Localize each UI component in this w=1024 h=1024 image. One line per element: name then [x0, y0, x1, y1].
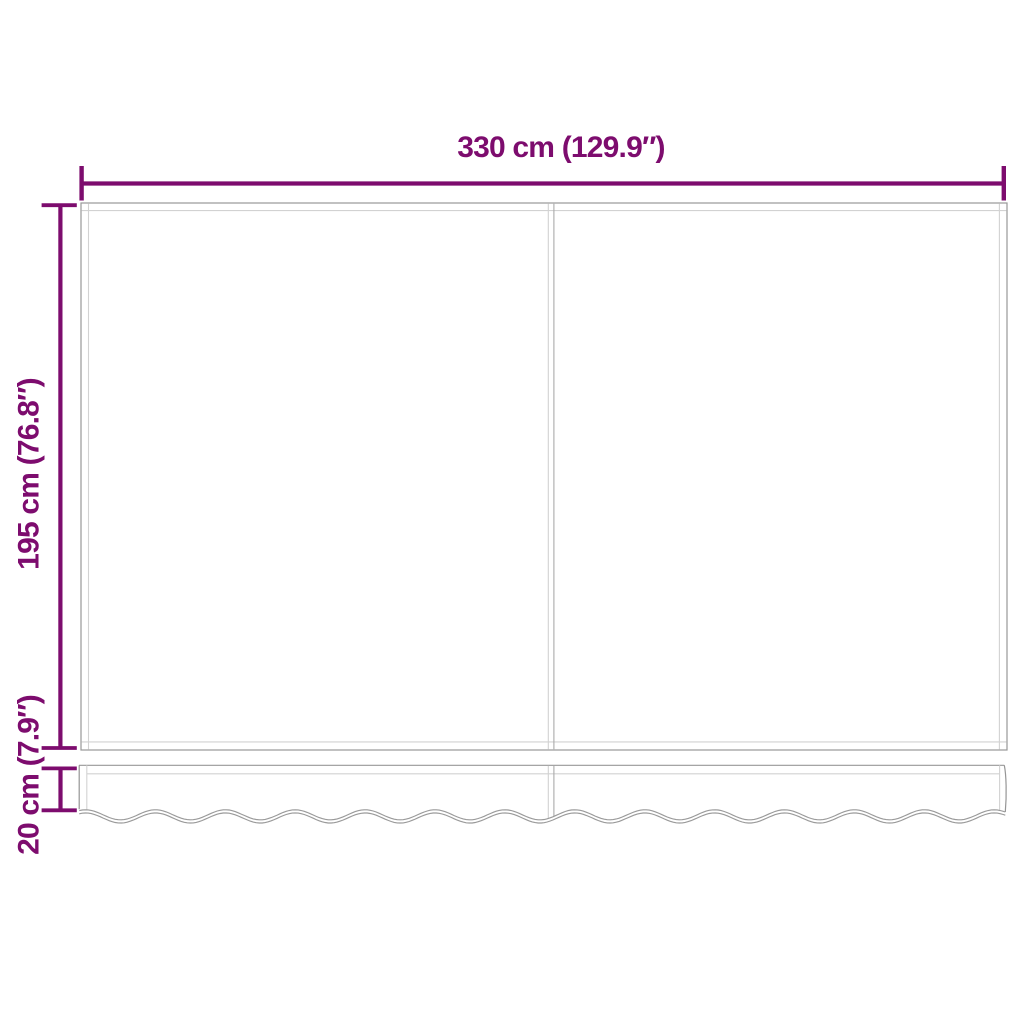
svg-text:20 cm (7.9″): 20 cm (7.9″) [12, 695, 45, 855]
svg-text:195 cm (76.8″): 195 cm (76.8″) [12, 378, 45, 570]
svg-text:330 cm (129.9″): 330 cm (129.9″) [457, 131, 665, 164]
